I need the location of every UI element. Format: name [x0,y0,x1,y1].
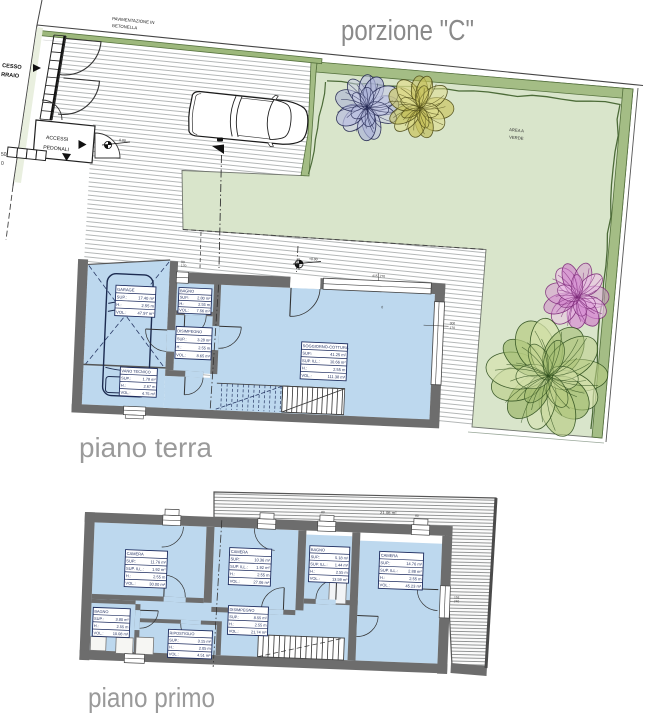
svg-text:SUP.:: SUP.: [117,294,127,299]
svg-text:H.:: H.: [380,575,385,580]
svg-text:piano primo: piano primo [88,682,215,713]
svg-text:H.:: H.: [176,344,181,349]
svg-text:VOL.:: VOL.: [301,373,311,378]
svg-text:BAGNO: BAGNO [311,547,325,553]
svg-text:10.66 m²: 10.66 m² [330,359,347,365]
svg-text:VOL.:: VOL.: [93,630,103,635]
svg-text:VOL.:: VOL.: [120,390,130,395]
svg-text:80: 80 [415,514,419,518]
svg-text:240: 240 [454,599,460,603]
svg-text:CAMERA: CAMERA [381,553,399,559]
svg-text:1.78 m²: 1.78 m² [142,376,156,382]
svg-text:SUP.:: SUP.: [126,558,136,563]
svg-text:H.:: H.: [229,621,234,626]
svg-text:4.75 m³: 4.75 m³ [142,391,156,397]
svg-text:2.05 m: 2.05 m [199,645,211,650]
svg-text:2.55 m: 2.55 m [257,572,270,577]
svg-text:SUP. ILL.:: SUP. ILL.: [302,358,320,364]
svg-text:17.40 m²: 17.40 m² [138,295,155,301]
svg-text:VOL.:: VOL.: [125,581,135,586]
svg-text:80: 80 [321,510,325,514]
svg-text:piano terra: piano terra [79,432,212,463]
svg-text:SUP.:: SUP.: [302,351,312,356]
svg-text:2.55 m: 2.55 m [198,302,210,308]
svg-text:BAGNO: BAGNO [94,609,108,615]
svg-text:SUP.:: SUP.: [311,554,321,559]
svg-text:270: 270 [380,274,386,278]
svg-text:RIPOSTIGLIO: RIPOSTIGLIO [170,630,195,636]
svg-text:2.55 m: 2.55 m [409,576,422,581]
svg-text:21.74 m³: 21.74 m³ [251,629,267,635]
svg-text:RRAIO: RRAIO [1,72,20,80]
svg-text:3.15 m²: 3.15 m² [198,638,212,644]
svg-text:VOL.:: VOL.: [380,582,390,587]
svg-text:415: 415 [372,274,378,278]
svg-text:2.67 m: 2.67 m [143,384,155,390]
svg-text:0: 0 [381,305,383,309]
svg-text:170: 170 [181,264,187,268]
svg-text:H.:: H.: [179,301,184,306]
svg-text:VOL.:: VOL.: [176,352,186,357]
svg-text:2.55 m: 2.55 m [198,345,210,351]
svg-text:2.80 m²: 2.80 m² [197,295,211,301]
svg-text:2.55 m: 2.55 m [116,624,128,629]
svg-text:5.18 m²: 5.18 m² [335,555,349,561]
svg-text:SUP. ILL.:: SUP. ILL.: [380,567,398,573]
svg-text:7.56 m³: 7.56 m³ [196,308,210,314]
svg-text:GARAGE: GARAGE [117,287,135,293]
svg-text:CESSO: CESSO [2,63,23,71]
svg-text:SUP.:: SUP.: [169,637,179,642]
svg-text:VOL.:: VOL.: [116,310,127,315]
svg-text:H.:: H.: [126,573,131,578]
svg-text:3.80 m²: 3.80 m² [115,617,129,623]
svg-text:SUP. ILL.:: SUP. ILL.: [310,561,327,567]
svg-text:0: 0 [1,161,4,167]
svg-text:VOL.:: VOL.: [169,651,179,656]
svg-text:BAGNO: BAGNO [180,288,194,294]
svg-text:VOL.:: VOL.: [229,628,239,633]
svg-text:DISIMPEGNO: DISIMPEGNO [177,328,202,334]
svg-text:50: 50 [1,152,7,158]
svg-text:2.55 m: 2.55 m [336,569,348,574]
svg-text:4.51 m³: 4.51 m³ [197,652,211,658]
svg-text:8.65 m³: 8.65 m³ [197,353,211,359]
svg-text:0.00: 0.00 [119,138,126,143]
svg-text:VOL.:: VOL.: [230,579,240,584]
svg-text:porzione "C": porzione "C" [341,15,474,47]
svg-text:8.55 m²: 8.55 m² [254,615,268,621]
svg-text:VOL.:: VOL.: [179,307,189,312]
svg-text:BETONELLA: BETONELLA [112,23,138,30]
svg-text:2.55 m: 2.55 m [141,303,154,309]
svg-text:47.97 m³: 47.97 m³ [137,310,154,316]
svg-text:3.28 m²: 3.28 m² [197,337,211,343]
svg-text:H.:: H.: [302,365,307,370]
svg-text:SUP.:: SUP.: [380,560,390,565]
svg-text:13.59 m³: 13.59 m³ [332,577,348,583]
svg-text:41.25 m²: 41.25 m² [330,352,347,358]
svg-text:30.00 m³: 30.00 m³ [149,581,166,587]
svg-text:DISIMPEGNO: DISIMPEGNO [229,607,254,613]
svg-text:SUP.:: SUP.: [180,294,190,299]
svg-text:SUP.:: SUP.: [94,616,104,621]
svg-text:H.:: H.: [94,623,99,628]
svg-text:14.76 m²: 14.76 m² [406,561,423,567]
svg-text:11.76 m²: 11.76 m² [150,559,166,565]
svg-text:H.:: H.: [116,302,121,307]
svg-text:1.92 m²: 1.92 m² [256,565,270,571]
svg-text:2.55 m: 2.55 m [153,574,166,579]
svg-text:H.:: H.: [121,383,126,388]
svg-text:H.:: H.: [310,568,315,573]
svg-text:SUP.:: SUP.: [229,614,239,619]
svg-text:H.:: H.: [230,571,235,576]
svg-text:SUP.:: SUP.: [121,375,131,380]
svg-text:SUP.:: SUP.: [230,556,240,561]
svg-text:1.92 m²: 1.92 m² [152,567,166,573]
svg-text:+0.00: +0.00 [309,257,318,261]
svg-text:27.06 m³: 27.06 m³ [253,579,270,585]
svg-text:10.08 m³: 10.08 m³ [113,631,129,637]
svg-text:10.36 m²: 10.36 m² [254,557,271,563]
svg-text:SUP. ILL.:: SUP. ILL.: [126,566,144,572]
svg-text:CAMERA: CAMERA [127,551,145,557]
svg-text:SUP.:: SUP.: [177,336,187,341]
svg-text:21.06 m²: 21.06 m² [380,510,397,515]
svg-text:VOL.:: VOL.: [310,576,320,581]
svg-text:45.23 m³: 45.23 m³ [405,583,422,589]
svg-text:170: 170 [449,326,455,330]
svg-text:H.:: H.: [169,644,174,649]
svg-text:2.55 m: 2.55 m [255,622,267,627]
svg-text:CAMERA: CAMERA [231,549,249,555]
svg-text:2.88 m²: 2.88 m² [408,569,422,575]
svg-text:SUP. ILL.:: SUP. ILL.: [230,564,248,570]
svg-text:111.38 m³: 111.38 m³ [328,374,346,380]
svg-text:2.55 m: 2.55 m [333,367,346,373]
svg-text:1.44 m²: 1.44 m² [335,562,349,568]
